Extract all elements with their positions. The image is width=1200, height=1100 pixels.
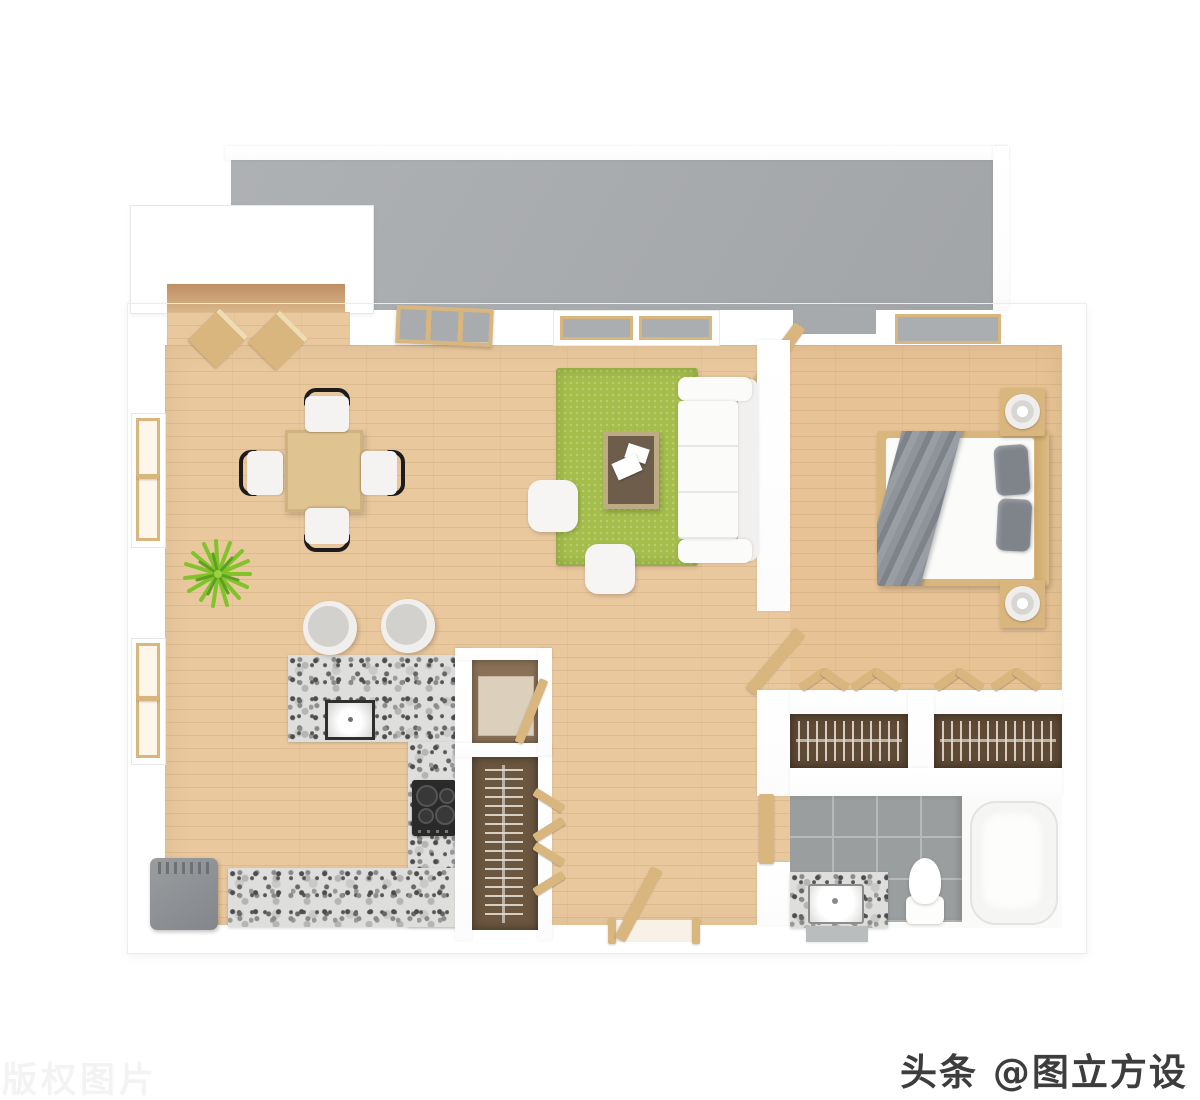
watermark-brand: 头条 @图立方设计 (900, 1042, 1200, 1100)
entry-door-jamb (608, 918, 616, 944)
fridge-vents (158, 862, 212, 874)
dining-chair (301, 388, 353, 436)
left-window-top-mullion (137, 474, 159, 479)
bifold-door (990, 666, 1042, 696)
ottoman (528, 480, 578, 532)
bifold-door (933, 666, 985, 696)
cooktop-knobs (418, 830, 450, 833)
bathtub-basin (980, 811, 1044, 911)
bifold-door (798, 666, 850, 696)
dining-chair (239, 447, 287, 499)
bar-stool (381, 599, 435, 653)
toilet-bowl (909, 858, 941, 904)
closet-right-hangers (942, 721, 1054, 761)
bed (877, 431, 1049, 586)
bath-mat (806, 926, 868, 942)
refrigerator (150, 858, 218, 930)
balcony-wall-top (225, 146, 1008, 160)
dining-chair (301, 504, 353, 552)
living-balcony-door (395, 305, 494, 347)
entry-door-jamb (692, 918, 700, 944)
kitchen-sink (325, 700, 375, 740)
closet-left-interior (790, 714, 908, 768)
wall-living-bedroom (757, 340, 790, 611)
pantry-wall-left (455, 648, 472, 940)
wall-hall-bath-lower (757, 862, 790, 925)
cooktop (412, 780, 456, 836)
living-window-pane-right (639, 316, 712, 340)
living-window-pane-left (560, 316, 633, 340)
burner (418, 808, 434, 824)
vanity-counter (790, 872, 888, 928)
pantry-wall-right-top (538, 648, 552, 757)
closet-wall-bottom (790, 768, 1062, 796)
floor-plan: 版权图片 头条 @图立方设计 (0, 0, 1200, 1100)
burner (416, 785, 438, 807)
kitchen-faucet (348, 717, 353, 722)
bathroom-door (759, 794, 774, 864)
bar-stool (303, 601, 357, 655)
sofa-back (738, 379, 758, 561)
table-lamp (1005, 586, 1040, 621)
pillow (993, 444, 1030, 496)
ottoman (585, 544, 635, 594)
sofa (676, 377, 758, 563)
burner (435, 805, 455, 825)
bedroom-window (895, 314, 1001, 344)
pillow (996, 498, 1033, 552)
vanity-sink (808, 884, 864, 924)
left-window-bottom-mullion (137, 696, 159, 701)
headboard (1035, 431, 1049, 586)
dining-chair (357, 447, 405, 499)
dining-table (285, 430, 363, 512)
bifold-door (534, 842, 566, 896)
sofa-armrest (678, 377, 752, 401)
closet-right-interior (934, 714, 1062, 768)
bathtub (962, 796, 1062, 928)
bifold-door (850, 666, 902, 696)
potted-plant (180, 536, 256, 612)
pantry-closet-interior (472, 757, 538, 930)
bedroom-balcony-doorway-gap (793, 306, 876, 334)
table-lamp (1005, 394, 1040, 429)
coffee-table (603, 431, 659, 509)
pantry-closet-hangers (485, 769, 523, 919)
bifold-door (534, 788, 566, 842)
sofa-armrest (678, 539, 752, 563)
sofa-seat (678, 401, 738, 539)
wall-hall-bath-upper (757, 690, 790, 796)
watermark-copyright: 版权图片 (2, 1052, 158, 1100)
kitchen-counter-bottom (228, 868, 458, 927)
closet-left-hangers (798, 721, 900, 761)
burner (439, 788, 455, 804)
left-window-top-pane (136, 418, 160, 541)
balcony-wall-right (993, 146, 1009, 310)
faucet (832, 898, 838, 904)
